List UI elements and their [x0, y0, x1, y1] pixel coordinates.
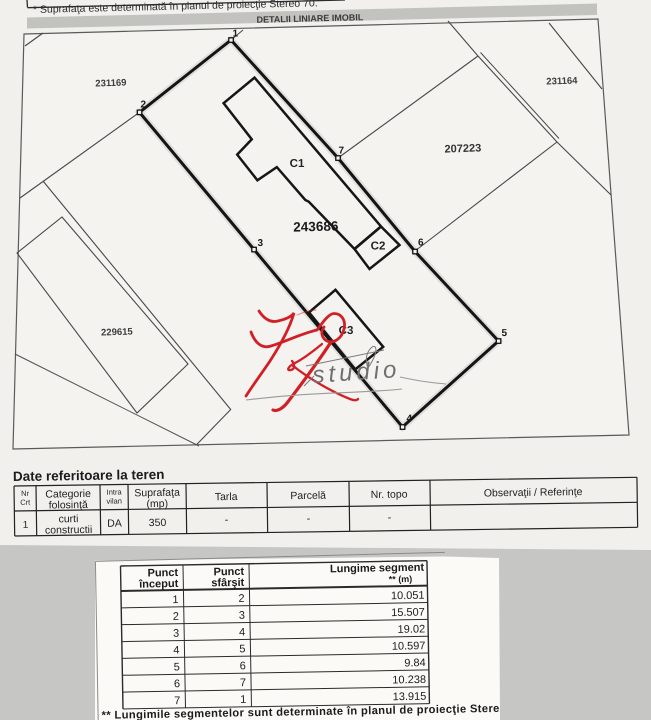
svg-text:7: 7	[174, 695, 180, 707]
svg-text:7: 7	[240, 677, 246, 689]
svg-text:6: 6	[240, 660, 246, 672]
svg-text:4: 4	[173, 644, 179, 656]
svg-text:Nr. topo: Nr. topo	[371, 489, 408, 502]
svg-text:3: 3	[258, 238, 264, 249]
svg-text:2: 2	[141, 100, 147, 111]
svg-text:231169: 231169	[95, 77, 127, 89]
svg-text:Parcelă: Parcelă	[290, 490, 326, 502]
svg-text:4: 4	[407, 414, 413, 425]
svg-text:1: 1	[233, 29, 239, 40]
svg-text:C1: C1	[290, 158, 305, 170]
svg-text:DA: DA	[107, 517, 122, 529]
svg-text:13.915: 13.915	[393, 691, 427, 704]
svg-text:(mp): (mp)	[146, 498, 168, 510]
svg-text:231164: 231164	[546, 75, 578, 87]
svg-text:vilan: vilan	[106, 496, 122, 505]
svg-text:Nr: Nr	[21, 489, 30, 498]
svg-text:6: 6	[418, 238, 424, 249]
svg-text:1: 1	[23, 520, 29, 531]
svg-text:început: început	[138, 578, 179, 591]
svg-text:5: 5	[502, 328, 508, 339]
svg-text:2: 2	[173, 611, 179, 623]
svg-text:folosinţă: folosinţă	[49, 499, 88, 512]
svg-text:C2: C2	[371, 241, 386, 253]
svg-text:1: 1	[172, 594, 178, 606]
svg-text:Observaţii / Referinţe: Observaţii / Referinţe	[484, 486, 583, 499]
svg-text:229615: 229615	[101, 326, 134, 338]
svg-text:10.597: 10.597	[392, 640, 426, 653]
svg-text:5: 5	[239, 643, 245, 655]
svg-text:15.507: 15.507	[391, 606, 425, 619]
svg-text:2: 2	[238, 593, 244, 605]
svg-text:3: 3	[173, 628, 179, 640]
svg-text:** (m): ** (m)	[389, 574, 413, 584]
svg-text:4: 4	[239, 627, 245, 639]
svg-text:Intra: Intra	[107, 487, 123, 496]
svg-text:7: 7	[339, 146, 345, 157]
svg-text:350: 350	[149, 517, 167, 529]
svg-text:10.051: 10.051	[391, 590, 425, 603]
svg-text:6: 6	[174, 678, 180, 690]
svg-text:1: 1	[240, 694, 246, 706]
svg-text:Tarla: Tarla	[215, 491, 238, 503]
svg-text:9.84: 9.84	[404, 657, 426, 669]
svg-text:10.238: 10.238	[392, 674, 426, 687]
svg-text:207223: 207223	[444, 142, 481, 155]
svg-text:constructii: constructii	[45, 524, 92, 537]
svg-text:3: 3	[239, 610, 245, 622]
svg-text:Date referitoare la teren: Date referitoare la teren	[13, 467, 165, 484]
svg-text:5: 5	[174, 661, 180, 673]
svg-text:sfârşit: sfârşit	[211, 577, 245, 590]
svg-text:19.02: 19.02	[398, 623, 426, 635]
svg-text:Crt: Crt	[20, 498, 31, 507]
